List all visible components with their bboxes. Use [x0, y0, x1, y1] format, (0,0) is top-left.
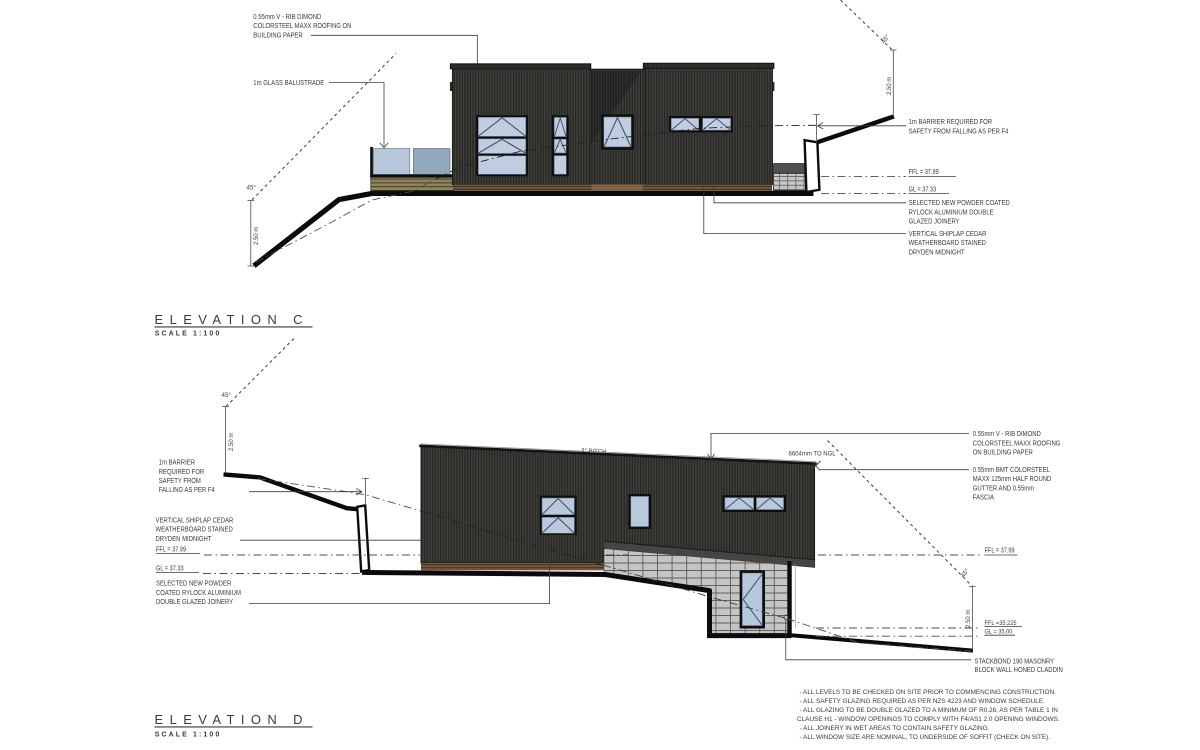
svg-text:GL = 35.00: GL = 35.00 — [984, 629, 1013, 635]
svg-text:1m BARRIER REQUIRED FOR: 1m BARRIER REQUIRED FOR — [909, 119, 993, 127]
svg-text:VERTICAL SHIPLAP CEDAR: VERTICAL SHIPLAP CEDAR — [909, 231, 987, 239]
svg-text:FFL =35.225: FFL =35.225 — [984, 621, 1017, 627]
svg-text:1m GLASS BALUSTRADE: 1m GLASS BALUSTRADE — [253, 80, 325, 88]
svg-text:SCALE 1:100: SCALE 1:100 — [155, 330, 222, 337]
svg-text:- ALL LEVELS TO BE CHECKED ON: - ALL LEVELS TO BE CHECKED ON SITE PRIOR… — [800, 689, 1057, 696]
svg-text:- ALL JOINERY IN WET AREAS TO: - ALL JOINERY IN WET AREAS TO CONTAIN SA… — [800, 725, 990, 732]
svg-text:STACKBOND 190 MASONRY: STACKBOND 190 MASONRY — [975, 658, 1055, 666]
svg-text:6604mm TO NGL: 6604mm TO NGL — [789, 452, 837, 458]
svg-text:ELEVATION C: ELEVATION C — [155, 312, 309, 327]
svg-text:BUILDING PAPER: BUILDING PAPER — [253, 32, 303, 40]
svg-text:GL = 37.33: GL = 37.33 — [909, 186, 937, 194]
svg-text:SAFETY FROM: SAFETY FROM — [159, 478, 201, 486]
svg-text:2.50 m: 2.50 m — [966, 610, 972, 628]
svg-text:CLAUSE H1 - WINDOW OPENINGS TO: CLAUSE H1 - WINDOW OPENINGS TO COMPLY WI… — [797, 716, 1060, 723]
svg-text:- ALL GLAZING TO BE DOUBLE GLA: - ALL GLAZING TO BE DOUBLE GLAZED TO A M… — [800, 707, 1059, 714]
svg-text:ELEVATION D: ELEVATION D — [155, 712, 309, 727]
svg-text:- ALL SAFETY GLAZING REQUIRED: - ALL SAFETY GLAZING REQUIRED AS PER NZS… — [800, 698, 1046, 705]
svg-text:0.55mm BMT COLORSTEEL: 0.55mm BMT COLORSTEEL — [973, 467, 1050, 475]
svg-text:SAFETY FROM FALLING AS PER F4: SAFETY FROM FALLING AS PER F4 — [909, 128, 1009, 136]
svg-text:DOUBLE GLAZED JOINERY: DOUBLE GLAZED JOINERY — [156, 599, 234, 607]
svg-text:45°: 45° — [247, 185, 257, 192]
svg-text:3° PITCH: 3° PITCH — [581, 448, 607, 455]
svg-text:FASCIA: FASCIA — [973, 494, 995, 502]
svg-text:SCALE 1:100: SCALE 1:100 — [155, 731, 222, 738]
svg-text:DRYDEN MIDNIGHT: DRYDEN MIDNIGHT — [156, 535, 212, 543]
svg-text:SELECTED NEW POWDER: SELECTED NEW POWDER — [156, 580, 232, 588]
svg-text:FFL = 37.99: FFL = 37.99 — [909, 168, 940, 176]
svg-text:45°: 45° — [222, 392, 232, 399]
svg-text:- ALL WINDOW SIZE ARE NOMINAL,: - ALL WINDOW SIZE ARE NOMINAL, TO UNDERS… — [800, 734, 1051, 741]
svg-text:BLOCK WALL HONED CLADDIN: BLOCK WALL HONED CLADDIN — [975, 666, 1064, 674]
svg-text:FALLING AS PER F4: FALLING AS PER F4 — [159, 487, 215, 495]
svg-text:DRYDEN MIDNIGHT: DRYDEN MIDNIGHT — [909, 249, 965, 257]
svg-text:ON BUILDING PAPER: ON BUILDING PAPER — [973, 449, 1033, 457]
svg-text:1m BARRIER: 1m BARRIER — [159, 459, 196, 467]
svg-text:0.55mm V - RIB DIMOND: 0.55mm V - RIB DIMOND — [973, 431, 1041, 439]
svg-text:WEATHERBOARD STAINED: WEATHERBOARD STAINED — [909, 240, 987, 248]
svg-text:MAXX 125mm HALF ROUND: MAXX 125mm HALF ROUND — [973, 476, 1052, 484]
svg-text:2.50 m: 2.50 m — [254, 227, 260, 245]
svg-text:GLAZED JOINERY: GLAZED JOINERY — [909, 218, 961, 226]
svg-text:COLORSTEEL MAXX ROOFING: COLORSTEEL MAXX ROOFING — [973, 440, 1061, 448]
svg-text:GUTTER AND 0.55mm: GUTTER AND 0.55mm — [973, 485, 1034, 493]
svg-text:2.50 m: 2.50 m — [887, 77, 893, 95]
svg-text:REQUIRED FOR: REQUIRED FOR — [159, 468, 205, 476]
svg-text:SELECTED NEW POWDER COATED: SELECTED NEW POWDER COATED — [909, 200, 1010, 208]
svg-text:COLORSTEEL MAXX ROOFING ON: COLORSTEEL MAXX ROOFING ON — [253, 23, 351, 31]
svg-text:WEATHERBOARD STAINED: WEATHERBOARD STAINED — [156, 526, 234, 534]
svg-text:RYLOCK ALUMINIUM DOUBLE: RYLOCK ALUMINIUM DOUBLE — [909, 209, 995, 217]
svg-text:FFL = 37.99: FFL = 37.99 — [156, 546, 187, 554]
svg-text:FFL = 37.99: FFL = 37.99 — [985, 547, 1016, 555]
svg-text:COATED RYLOCK ALUMINIUM: COATED RYLOCK ALUMINIUM — [156, 589, 241, 597]
svg-text:2.50 m: 2.50 m — [229, 433, 235, 451]
svg-text:0.55mm V - RIB DIMOND: 0.55mm V - RIB DIMOND — [253, 14, 321, 22]
svg-text:VERTICAL SHIPLAP CEDAR: VERTICAL SHIPLAP CEDAR — [156, 517, 234, 525]
svg-text:GL = 37.33: GL = 37.33 — [156, 565, 184, 573]
